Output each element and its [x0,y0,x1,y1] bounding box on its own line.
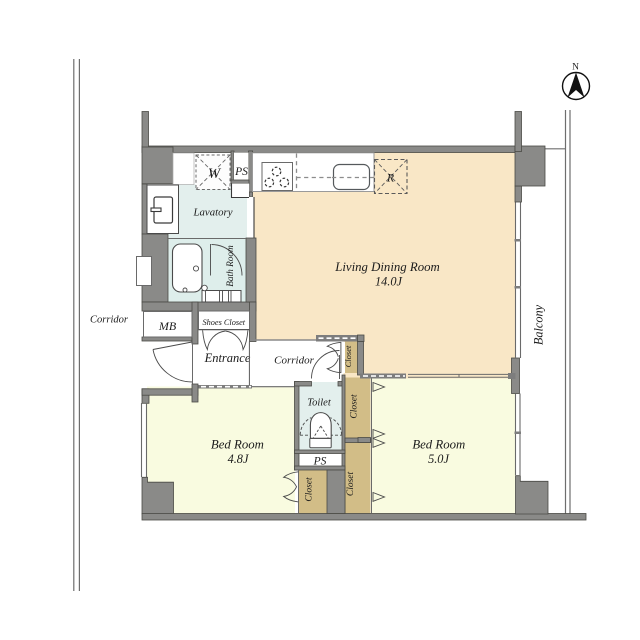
svg-text:5.0J: 5.0J [428,452,449,466]
svg-text:Closet: Closet [343,345,353,367]
svg-text:Living Dining Room: Living Dining Room [334,260,440,274]
svg-text:PS: PS [234,166,248,178]
svg-text:Toilet: Toilet [307,397,332,408]
svg-text:14.0J: 14.0J [375,275,403,289]
svg-text:Balcony: Balcony [532,304,546,345]
svg-text:Corridor: Corridor [274,355,314,367]
svg-text:Bed Room: Bed Room [412,438,465,452]
svg-text:PS: PS [313,456,327,468]
svg-text:R: R [386,173,394,185]
svg-text:Lavatory: Lavatory [193,206,233,218]
svg-text:Closet: Closet [346,472,356,497]
svg-text:Closet: Closet [350,394,360,419]
svg-text:Shoes Closet: Shoes Closet [202,318,245,327]
svg-text:W: W [208,166,222,182]
svg-text:Bath Room: Bath Room [226,245,236,287]
svg-text:Closet: Closet [305,477,315,502]
svg-text:MB: MB [158,319,177,333]
svg-text:N: N [572,63,579,73]
svg-text:Entrance: Entrance [204,351,251,365]
svg-text:Bed Room: Bed Room [211,438,264,452]
svg-text:4.8J: 4.8J [228,452,249,466]
svg-text:Corridor: Corridor [90,315,129,326]
